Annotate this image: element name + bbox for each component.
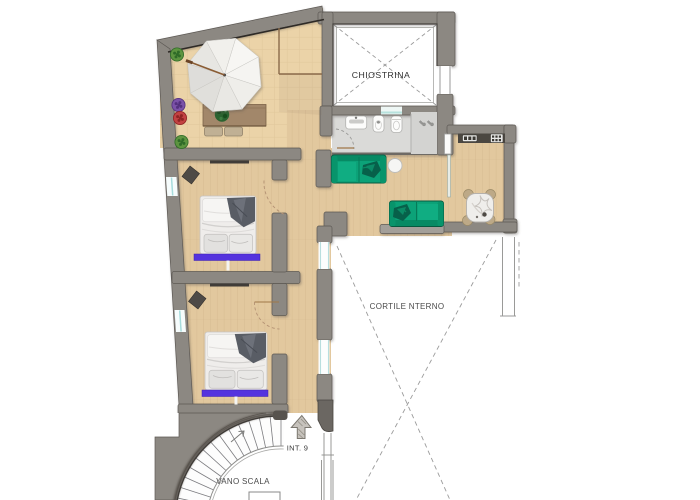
svg-text:INT. 9: INT. 9 [287, 444, 308, 453]
svg-text:CORTILE NTERNO: CORTILE NTERNO [370, 302, 445, 311]
svg-text:CHIOSTRINA: CHIOSTRINA [352, 70, 411, 80]
svg-text:VANO SCALA: VANO SCALA [216, 477, 270, 486]
